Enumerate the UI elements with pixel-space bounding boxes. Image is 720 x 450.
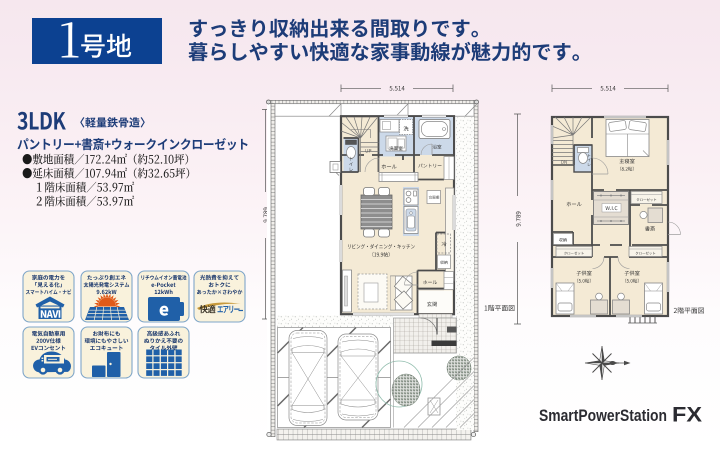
svg-text:SmartPowerStation: SmartPowerStation [539,406,667,425]
svg-text:FX: FX [672,403,703,427]
